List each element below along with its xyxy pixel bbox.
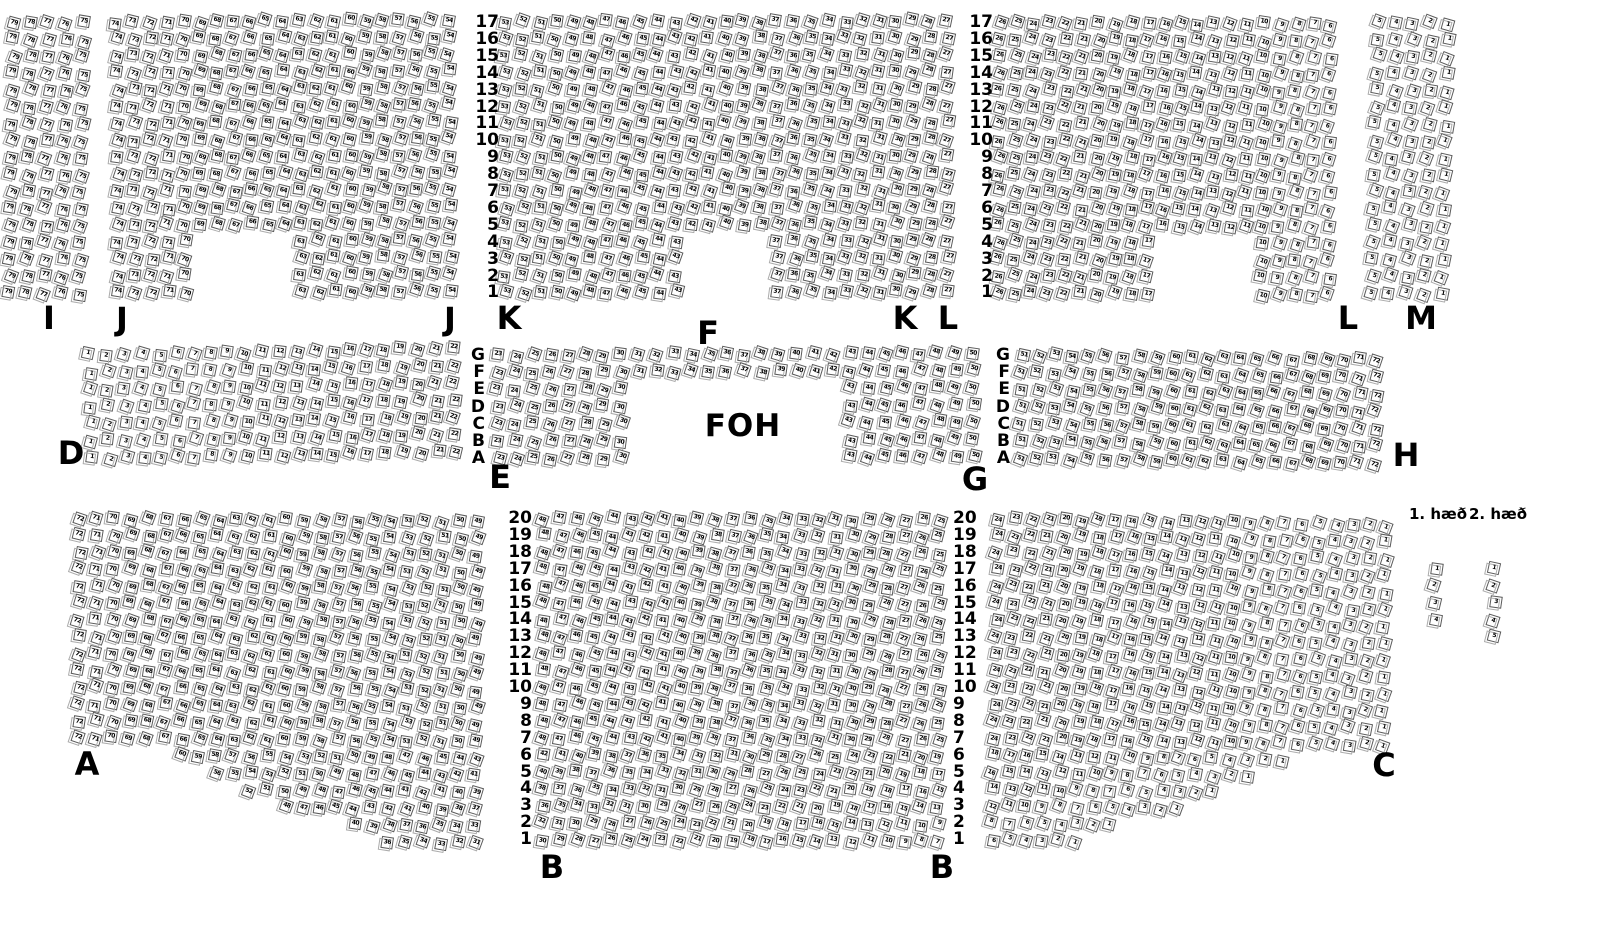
seat-I-78[interactable]: 78 xyxy=(20,236,34,250)
seat-L-26[interactable]: 26 xyxy=(991,32,1006,47)
seat-A-66[interactable]: 66 xyxy=(176,546,190,560)
seat-K-39[interactable]: 39 xyxy=(738,218,752,232)
seat-A-57[interactable]: 57 xyxy=(330,683,345,698)
seat-L-14[interactable]: 14 xyxy=(1191,133,1206,148)
seat-K-45[interactable]: 45 xyxy=(633,235,648,250)
seat-C-11[interactable]: 11 xyxy=(1207,668,1221,682)
seat-K-50[interactable]: 50 xyxy=(551,149,565,163)
seat-C-23[interactable]: 23 xyxy=(1006,645,1020,659)
seat-H-71[interactable]: 71 xyxy=(1353,440,1367,454)
seat-EFG-28[interactable]: 28 xyxy=(581,380,595,394)
seat-H-67[interactable]: 67 xyxy=(1283,387,1298,402)
seat-C-5[interactable]: 5 xyxy=(1308,736,1323,751)
seat-D-17[interactable]: 17 xyxy=(362,412,375,425)
seat-C-23[interactable]: 23 xyxy=(1004,680,1018,694)
seat-M-2[interactable]: 2 xyxy=(1420,101,1435,116)
seat-EFG-31[interactable]: 31 xyxy=(630,346,645,361)
seat-A-61[interactable]: 61 xyxy=(263,714,278,729)
seat-D-1[interactable]: 1 xyxy=(83,380,98,395)
seat-M-4[interactable]: 4 xyxy=(1387,98,1402,113)
seat-B-13[interactable]: 13 xyxy=(930,801,944,815)
seat-K-32[interactable]: 32 xyxy=(855,65,870,80)
seat-L-10[interactable]: 10 xyxy=(1254,136,1269,151)
seat-C-8[interactable]: 8 xyxy=(1260,670,1274,684)
seat-A-43[interactable]: 43 xyxy=(364,800,378,814)
seat-A-54[interactable]: 54 xyxy=(384,583,398,597)
seat-C-11[interactable]: 11 xyxy=(1209,633,1224,648)
seat-L-9[interactable]: 9 xyxy=(1272,86,1286,100)
seat-B-29[interactable]: 29 xyxy=(656,798,670,812)
seat-B-48[interactable]: 48 xyxy=(538,662,552,676)
seat-A-64[interactable]: 64 xyxy=(209,698,223,712)
seat-B-43[interactable]: 43 xyxy=(621,580,636,595)
seat-B-25[interactable]: 25 xyxy=(931,582,945,596)
seat-B-35[interactable]: 35 xyxy=(760,527,774,541)
seat-A-69[interactable]: 69 xyxy=(122,680,136,694)
seat-B-32[interactable]: 32 xyxy=(811,733,826,748)
seat-B-38[interactable]: 38 xyxy=(569,764,583,778)
seat-L-25[interactable]: 25 xyxy=(1007,166,1021,180)
seat-EFG-26[interactable]: 26 xyxy=(545,399,558,412)
seat-EFG-46[interactable]: 46 xyxy=(895,344,910,359)
seat-EFG-23[interactable]: 23 xyxy=(490,416,505,431)
seat-C-1[interactable]: 1 xyxy=(1241,770,1255,784)
seat-C-2[interactable]: 2 xyxy=(1362,602,1376,616)
seat-B-33[interactable]: 33 xyxy=(794,562,808,576)
seat-EFG-37[interactable]: 37 xyxy=(736,362,751,377)
seat-C-4[interactable]: 4 xyxy=(1121,802,1136,817)
seat-J-71[interactable]: 71 xyxy=(161,15,175,29)
seat-K-41[interactable]: 41 xyxy=(702,64,716,78)
seat-C-7[interactable]: 7 xyxy=(1103,784,1117,798)
seat-B-42[interactable]: 42 xyxy=(638,698,653,713)
seat-A-67[interactable]: 67 xyxy=(158,595,172,609)
seat-K-34[interactable]: 34 xyxy=(820,217,835,232)
seat-A-33[interactable]: 33 xyxy=(468,819,482,833)
seat-L-23[interactable]: 23 xyxy=(1040,67,1055,82)
seat-K-41[interactable]: 41 xyxy=(702,49,717,64)
seat-C-1[interactable]: 1 xyxy=(1377,686,1392,701)
seat-D-14[interactable]: 14 xyxy=(308,363,321,376)
seat-D-4[interactable]: 4 xyxy=(136,432,151,447)
seat-EFG-30[interactable]: 30 xyxy=(615,448,630,463)
seat-J-55[interactable]: 55 xyxy=(425,146,440,161)
seat-K-27[interactable]: 27 xyxy=(939,13,953,27)
seat-B-29[interactable]: 29 xyxy=(862,599,876,613)
seat-A-54[interactable]: 54 xyxy=(383,563,397,577)
seat-J-73[interactable]: 73 xyxy=(126,234,140,248)
seat-J-54[interactable]: 54 xyxy=(442,81,457,96)
seat-K-30[interactable]: 30 xyxy=(889,81,904,96)
seat-L-21[interactable]: 21 xyxy=(1074,203,1088,217)
seat-EFG-44[interactable]: 44 xyxy=(859,416,874,431)
seat-L-11[interactable]: 11 xyxy=(1242,32,1256,46)
seat-K-52[interactable]: 52 xyxy=(514,47,528,61)
seat-H-58[interactable]: 58 xyxy=(1133,402,1148,417)
seat-L-26[interactable]: 26 xyxy=(992,236,1007,251)
seat-B-27[interactable]: 27 xyxy=(895,714,910,729)
seat-C-3[interactable]: 3 xyxy=(1344,652,1358,666)
seat-H-65[interactable]: 65 xyxy=(1252,368,1267,383)
seat-L-7[interactable]: 7 xyxy=(1308,101,1322,115)
seat-H-72[interactable]: 72 xyxy=(1369,368,1384,383)
seat-C-9[interactable]: 9 xyxy=(1245,551,1259,565)
seat-L-9[interactable]: 9 xyxy=(1272,52,1286,66)
seat-B-25[interactable]: 25 xyxy=(934,514,949,529)
seat-C-18[interactable]: 18 xyxy=(1093,531,1107,545)
seat-J-57[interactable]: 57 xyxy=(393,163,408,178)
seat-B-36[interactable]: 36 xyxy=(741,716,756,731)
seat-J-64[interactable]: 64 xyxy=(277,29,292,44)
seat-H-52[interactable]: 52 xyxy=(1031,398,1046,413)
seat-B-33[interactable]: 33 xyxy=(793,528,808,543)
seat-A-54[interactable]: 54 xyxy=(383,717,398,732)
seat-EFG-48[interactable]: 48 xyxy=(931,379,945,393)
seat-B-22[interactable]: 22 xyxy=(809,781,824,796)
seat-D-9[interactable]: 9 xyxy=(224,413,239,428)
seat-J-54[interactable]: 54 xyxy=(442,13,456,27)
seat-B-23[interactable]: 23 xyxy=(689,817,703,831)
seat-C-9[interactable]: 9 xyxy=(1244,633,1258,647)
seat-B-40[interactable]: 40 xyxy=(673,733,687,747)
seat-H-64[interactable]: 64 xyxy=(1232,402,1246,416)
seat-A-56[interactable]: 56 xyxy=(209,766,224,781)
seat-B-43[interactable]: 43 xyxy=(624,595,638,609)
seat-L-16[interactable]: 16 xyxy=(1155,169,1170,184)
seat-B-43[interactable]: 43 xyxy=(623,547,637,561)
seat-J-65[interactable]: 65 xyxy=(261,115,275,129)
seat-A-69[interactable]: 69 xyxy=(125,580,139,594)
seat-A-66[interactable]: 66 xyxy=(175,680,189,694)
seat-I-79[interactable]: 79 xyxy=(7,16,22,31)
seat-L-18[interactable]: 18 xyxy=(1124,101,1139,116)
seat-C-17[interactable]: 17 xyxy=(1109,581,1124,596)
seat-J-61[interactable]: 61 xyxy=(324,81,339,96)
seat-A-58[interactable]: 58 xyxy=(316,531,330,545)
seat-C-11[interactable]: 11 xyxy=(1207,716,1222,731)
seat-D-3[interactable]: 3 xyxy=(119,399,134,414)
seat-H-71[interactable]: 71 xyxy=(1351,371,1366,386)
seat-C-11[interactable]: 11 xyxy=(1209,565,1224,580)
seat-A-70[interactable]: 70 xyxy=(106,563,120,577)
seat-C-2[interactable]: 2 xyxy=(1153,802,1168,817)
seat-J-61[interactable]: 61 xyxy=(329,282,343,296)
seat-L-6[interactable]: 6 xyxy=(1323,101,1337,115)
seat-EFG-26[interactable]: 26 xyxy=(543,452,557,466)
seat-I-75[interactable]: 75 xyxy=(73,135,88,150)
seat-C-5[interactable]: 5 xyxy=(1310,651,1325,666)
seat-L-18[interactable]: 18 xyxy=(1122,135,1137,150)
seat-C-6[interactable]: 6 xyxy=(1290,685,1304,699)
seat-L-13[interactable]: 13 xyxy=(1205,68,1220,83)
seat-I-77[interactable]: 77 xyxy=(38,268,52,282)
seat-L-15[interactable]: 15 xyxy=(1173,151,1188,166)
seat-K-42[interactable]: 42 xyxy=(684,217,698,231)
seat-B-31[interactable]: 31 xyxy=(827,697,841,711)
seat-J-74[interactable]: 74 xyxy=(110,236,124,250)
seat-C-18[interactable]: 18 xyxy=(1089,680,1104,695)
seat-C-7[interactable]: 7 xyxy=(1275,653,1289,667)
seat-L-24[interactable]: 24 xyxy=(1022,250,1037,265)
seat-B-24[interactable]: 24 xyxy=(813,768,827,782)
seat-C-5[interactable]: 5 xyxy=(1310,603,1325,618)
seat-M-2[interactable]: 2 xyxy=(1425,35,1439,49)
seat-C-7[interactable]: 7 xyxy=(1279,534,1293,548)
seat-B-43[interactable]: 43 xyxy=(620,662,635,677)
seat-J-63[interactable]: 63 xyxy=(292,181,306,195)
seat-C-1[interactable]: 1 xyxy=(1379,534,1393,548)
seat-L-10[interactable]: 10 xyxy=(1255,186,1269,200)
seat-L-18[interactable]: 18 xyxy=(1125,203,1139,217)
seat-C-21[interactable]: 21 xyxy=(1043,512,1058,527)
seat-B-37[interactable]: 37 xyxy=(726,646,740,660)
seat-B-36[interactable]: 36 xyxy=(742,663,757,678)
seat-C-8[interactable]: 8 xyxy=(1259,515,1275,531)
seat-M-3[interactable]: 3 xyxy=(1401,271,1415,285)
seat-J-72[interactable]: 72 xyxy=(143,233,158,248)
seat-L-21[interactable]: 21 xyxy=(1073,150,1087,164)
seat-K-30[interactable]: 30 xyxy=(888,64,902,78)
seat-L-8[interactable]: 8 xyxy=(1289,49,1304,64)
seat-I-79[interactable]: 79 xyxy=(4,118,18,132)
seat-A-60[interactable]: 60 xyxy=(279,631,294,646)
seat-A-59[interactable]: 59 xyxy=(191,750,205,764)
seat-I-77[interactable]: 77 xyxy=(40,166,54,180)
seat-C-21[interactable]: 21 xyxy=(1039,679,1055,695)
seat-B-31[interactable]: 31 xyxy=(827,564,842,579)
seat-L-26[interactable]: 26 xyxy=(993,48,1007,62)
seat-L-14[interactable]: 14 xyxy=(1190,167,1205,182)
seat-A-54[interactable]: 54 xyxy=(382,650,397,665)
seat-J-57[interactable]: 57 xyxy=(393,251,408,266)
seat-L-22[interactable]: 22 xyxy=(1060,32,1074,46)
seat-C-4[interactable]: 4 xyxy=(1328,654,1343,669)
seat-K-44[interactable]: 44 xyxy=(650,218,665,233)
seat-J-72[interactable]: 72 xyxy=(142,97,157,112)
seat-A-62[interactable]: 62 xyxy=(245,529,260,544)
seat-K-51[interactable]: 51 xyxy=(534,201,548,215)
seat-C-14[interactable]: 14 xyxy=(1154,716,1169,731)
seat-EFG-48[interactable]: 48 xyxy=(933,413,947,427)
seat-D-17[interactable]: 17 xyxy=(360,447,374,461)
seat-B-30[interactable]: 30 xyxy=(846,629,861,644)
seat-D-7[interactable]: 7 xyxy=(189,381,204,396)
seat-J-71[interactable]: 71 xyxy=(158,133,173,148)
seat-K-46[interactable]: 46 xyxy=(618,268,632,282)
seat-EFG-31[interactable]: 31 xyxy=(633,364,648,379)
seat-C-17[interactable]: 17 xyxy=(1110,529,1125,544)
seat-A-50[interactable]: 50 xyxy=(453,648,467,662)
seat-B-48[interactable]: 48 xyxy=(535,680,550,695)
seat-A-63[interactable]: 63 xyxy=(228,578,243,593)
seat-A-67[interactable]: 67 xyxy=(160,512,174,526)
seat-L-9[interactable]: 9 xyxy=(1273,119,1288,134)
seat-J-60[interactable]: 60 xyxy=(341,165,356,180)
seat-M-1[interactable]: 1 xyxy=(1443,32,1457,46)
seat-I-78[interactable]: 78 xyxy=(19,202,34,217)
seat-C-5[interactable]: 5 xyxy=(1308,686,1323,701)
seat-J-65[interactable]: 65 xyxy=(261,33,274,46)
seat-EFG-26[interactable]: 26 xyxy=(545,348,559,362)
seat-C-9[interactable]: 9 xyxy=(1240,652,1255,667)
seat-A-66[interactable]: 66 xyxy=(174,665,189,680)
seat-K-34[interactable]: 34 xyxy=(823,199,837,213)
seat-L-23[interactable]: 23 xyxy=(1040,252,1055,267)
seat-M-5[interactable]: 5 xyxy=(1370,33,1384,47)
seat-K-31[interactable]: 31 xyxy=(873,231,888,246)
seat-K-49[interactable]: 49 xyxy=(565,198,580,213)
seat-L-18[interactable]: 18 xyxy=(1126,14,1141,29)
seat-B-43[interactable]: 43 xyxy=(623,682,637,696)
seat-A-66[interactable]: 66 xyxy=(178,513,192,527)
seat-M-2[interactable]: 2 xyxy=(1419,201,1434,216)
seat-A-56[interactable]: 56 xyxy=(348,528,363,543)
seat-D-10[interactable]: 10 xyxy=(237,346,252,361)
seat-A-68[interactable]: 68 xyxy=(142,563,157,578)
seat-EFG-45[interactable]: 45 xyxy=(878,346,893,361)
seat-C-5[interactable]: 5 xyxy=(1309,702,1324,717)
seat-K-48[interactable]: 48 xyxy=(584,83,598,97)
seat-C-5[interactable]: 5 xyxy=(1310,549,1324,563)
seat-L-23[interactable]: 23 xyxy=(1039,201,1054,216)
seat-J-54[interactable]: 54 xyxy=(444,62,457,75)
seat-C-16[interactable]: 16 xyxy=(1124,548,1138,562)
seat-L-8[interactable]: 8 xyxy=(1288,136,1303,151)
seat-I-75[interactable]: 75 xyxy=(72,235,86,249)
seat-C-14[interactable]: 14 xyxy=(1155,683,1170,698)
seat-C-7[interactable]: 7 xyxy=(1273,734,1287,748)
seat-K-43[interactable]: 43 xyxy=(670,150,684,164)
seat-A-48[interactable]: 48 xyxy=(314,782,329,797)
seat-C-22[interactable]: 22 xyxy=(1024,560,1040,576)
seat-B-27[interactable]: 27 xyxy=(896,680,911,695)
seat-H-60[interactable]: 60 xyxy=(1167,437,1182,452)
seat-B-32[interactable]: 32 xyxy=(709,749,723,763)
seat-B-48[interactable]: 48 xyxy=(535,593,550,608)
seat-I-76[interactable]: 76 xyxy=(56,150,71,165)
seat-K-33[interactable]: 33 xyxy=(837,249,852,264)
seat-B-41[interactable]: 41 xyxy=(655,696,669,710)
seat-L-26[interactable]: 26 xyxy=(991,115,1006,130)
seat-L-22[interactable]: 22 xyxy=(1055,286,1070,301)
seat-K-31[interactable]: 31 xyxy=(872,150,887,165)
seat-L-9[interactable]: 9 xyxy=(1272,168,1286,182)
seat-A-47[interactable]: 47 xyxy=(296,801,311,816)
seat-C-14[interactable]: 14 xyxy=(1160,530,1174,544)
seat-B-25[interactable]: 25 xyxy=(931,615,946,630)
seat-B-37[interactable]: 37 xyxy=(724,712,739,727)
seat-EFG-43[interactable]: 43 xyxy=(845,345,859,359)
seat-I-76[interactable]: 76 xyxy=(54,236,69,251)
seat-B-36[interactable]: 36 xyxy=(637,747,652,762)
seat-J-55[interactable]: 55 xyxy=(427,284,442,299)
seat-K-30[interactable]: 30 xyxy=(890,98,904,112)
seat-A-60[interactable]: 60 xyxy=(281,578,296,593)
seat-J-57[interactable]: 57 xyxy=(393,285,407,299)
seat-A-64[interactable]: 64 xyxy=(212,547,227,562)
seat-A-55[interactable]: 55 xyxy=(367,682,382,697)
seat-A-64[interactable]: 64 xyxy=(209,714,224,729)
seat-A-61[interactable]: 61 xyxy=(259,733,274,748)
seat-B-33[interactable]: 33 xyxy=(793,696,808,711)
seat-C-6[interactable]: 6 xyxy=(1294,618,1309,633)
seat-EFG-26[interactable]: 26 xyxy=(544,382,559,397)
seat-A-49[interactable]: 49 xyxy=(363,750,378,765)
seat-L-15[interactable]: 15 xyxy=(1173,168,1187,182)
seat-J-64[interactable]: 64 xyxy=(278,199,292,213)
seat-J-66[interactable]: 66 xyxy=(242,148,257,163)
seat-C-1[interactable]: 1 xyxy=(1380,553,1395,568)
seat-K-39[interactable]: 39 xyxy=(738,184,752,198)
seat-D-18[interactable]: 18 xyxy=(379,411,394,426)
seat-M-4[interactable]: 4 xyxy=(1382,253,1397,268)
seat-L-9[interactable]: 9 xyxy=(1273,32,1288,47)
seat-J-54[interactable]: 54 xyxy=(441,183,456,198)
seat-D-11[interactable]: 11 xyxy=(258,363,272,377)
seat-A-52[interactable]: 52 xyxy=(417,513,432,528)
seat-K-39[interactable]: 39 xyxy=(734,198,749,213)
seat-K-36[interactable]: 36 xyxy=(786,232,800,246)
seat-K-48[interactable]: 48 xyxy=(583,250,597,264)
seat-H-72[interactable]: 72 xyxy=(1370,423,1384,437)
seat-L-11[interactable]: 11 xyxy=(1237,184,1252,199)
seat-J-63[interactable]: 63 xyxy=(295,283,310,298)
seat-A-52[interactable]: 52 xyxy=(419,718,433,732)
seat-K-39[interactable]: 39 xyxy=(735,13,750,28)
seat-L-22[interactable]: 22 xyxy=(1056,200,1071,215)
seat-H-52[interactable]: 52 xyxy=(1032,383,1047,398)
seat-B-16[interactable]: 16 xyxy=(880,799,894,813)
seat-K-39[interactable]: 39 xyxy=(735,32,750,47)
seat-L-8[interactable]: 8 xyxy=(1287,271,1302,286)
seat-EFG-27[interactable]: 27 xyxy=(561,416,576,431)
seat-H-68[interactable]: 68 xyxy=(1301,385,1315,399)
seat-J-65[interactable]: 65 xyxy=(262,217,276,231)
seat-D-14[interactable]: 14 xyxy=(310,447,324,461)
seat-B-46[interactable]: 46 xyxy=(571,647,586,662)
seat-L-22[interactable]: 22 xyxy=(1056,152,1071,167)
seat-K-46[interactable]: 46 xyxy=(618,30,633,45)
seat-A-62[interactable]: 62 xyxy=(243,562,258,577)
seat-B-15[interactable]: 15 xyxy=(896,801,911,816)
seat-A-50[interactable]: 50 xyxy=(454,614,468,628)
seat-C-3[interactable]: 3 xyxy=(1346,551,1361,566)
seat-EFG-25[interactable]: 25 xyxy=(526,380,541,395)
seat-K-42[interactable]: 42 xyxy=(686,148,701,163)
seat-C-13[interactable]: 13 xyxy=(1176,547,1190,561)
seat-A-67[interactable]: 67 xyxy=(156,682,171,697)
seat-K-52[interactable]: 52 xyxy=(516,115,530,129)
seat-L-7[interactable]: 7 xyxy=(1307,235,1321,249)
seat-L-19[interactable]: 19 xyxy=(1106,235,1121,250)
seat-A-64[interactable]: 64 xyxy=(210,528,224,542)
seat-B-37[interactable]: 37 xyxy=(727,563,741,577)
seat-J-60[interactable]: 60 xyxy=(342,216,357,231)
seat-B-22[interactable]: 22 xyxy=(775,798,790,813)
seat-J-72[interactable]: 72 xyxy=(145,166,158,179)
seat-A-67[interactable]: 67 xyxy=(159,649,173,663)
seat-C-11[interactable]: 11 xyxy=(1210,599,1225,614)
seat-B-36[interactable]: 36 xyxy=(742,545,756,559)
seat-A-67[interactable]: 67 xyxy=(157,546,172,561)
seat-K-52[interactable]: 52 xyxy=(515,167,529,181)
seat-M-3[interactable]: 3 xyxy=(1398,284,1413,299)
seat-C-10[interactable]: 10 xyxy=(1224,718,1240,734)
seat-K-37[interactable]: 37 xyxy=(770,66,784,80)
seat-J-55[interactable]: 55 xyxy=(425,232,440,247)
seat-K-37[interactable]: 37 xyxy=(769,148,783,162)
seat-M-3[interactable]: 3 xyxy=(1402,184,1416,198)
